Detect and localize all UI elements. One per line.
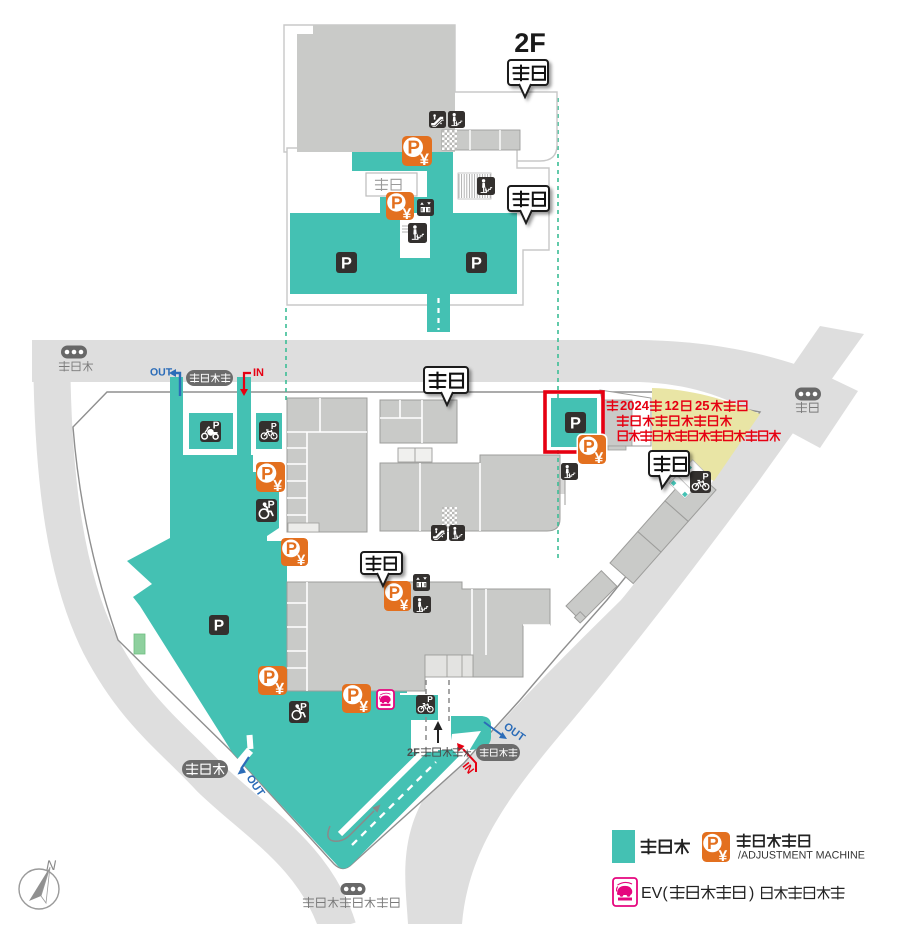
svg-text:P: P [341, 254, 352, 272]
svg-text:¥: ¥ [403, 206, 412, 223]
svg-text:¥: ¥ [400, 597, 409, 614]
svg-text:P: P [707, 833, 719, 853]
svg-text:IN: IN [253, 367, 264, 379]
svg-text:2F: 2F [514, 28, 546, 58]
svg-text:EV(: EV( [641, 885, 668, 902]
svg-text:): ) [749, 885, 754, 902]
svg-text:25: 25 [695, 398, 709, 413]
svg-text:OUT: OUT [150, 367, 173, 379]
svg-text:P: P [427, 694, 433, 704]
svg-text:12: 12 [665, 398, 679, 413]
svg-text:P: P [213, 421, 220, 432]
svg-text:P: P [471, 254, 482, 272]
svg-text:¥: ¥ [275, 680, 284, 698]
svg-text:2F: 2F [407, 747, 420, 759]
svg-text:P: P [214, 618, 224, 635]
svg-text:¥: ¥ [359, 698, 368, 716]
svg-text:P: P [391, 192, 403, 212]
svg-text:P: P [407, 137, 420, 158]
svg-text:P: P [300, 702, 307, 713]
svg-text:P: P [389, 583, 400, 602]
svg-text:N: N [46, 857, 57, 873]
svg-text:¥: ¥ [297, 552, 306, 569]
svg-text:/ADJUSTMENT MACHINE: /ADJUSTMENT MACHINE [738, 850, 865, 862]
svg-text:¥: ¥ [420, 150, 430, 169]
svg-text:P: P [268, 499, 275, 511]
svg-text:P: P [347, 685, 359, 705]
svg-text:P: P [583, 436, 595, 456]
svg-text:P: P [702, 471, 708, 481]
svg-text:P: P [570, 414, 581, 432]
svg-text:P: P [261, 463, 273, 483]
svg-text:¥: ¥ [273, 477, 282, 495]
svg-text:2024: 2024 [620, 398, 650, 413]
svg-text:P: P [271, 421, 277, 431]
svg-text:¥: ¥ [595, 450, 604, 467]
svg-text:P: P [263, 667, 275, 687]
svg-text:P: P [286, 539, 297, 558]
svg-text:¥: ¥ [719, 848, 728, 865]
